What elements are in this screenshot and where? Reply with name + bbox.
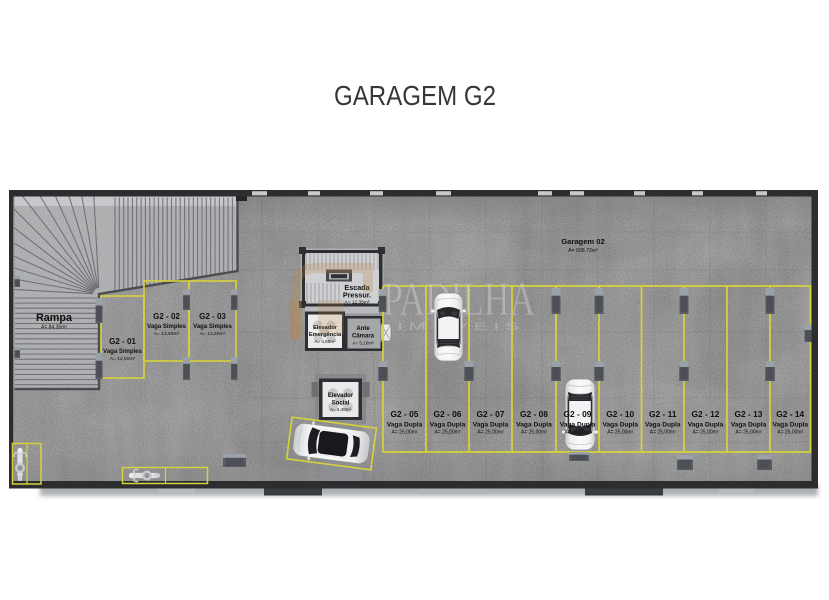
svg-text:G2 - 06: G2 - 06 — [434, 409, 462, 419]
svg-text:Vaga Dupla: Vaga Dupla — [731, 422, 767, 429]
svg-text:Social: Social — [332, 401, 350, 407]
svg-text:A= 12,35m²: A= 12,35m² — [345, 300, 370, 306]
svg-text:A= 12,50m²: A= 12,50m² — [200, 331, 226, 337]
svg-text:Vaga Simples: Vaga Simples — [147, 324, 186, 330]
svg-text:Vaga Dupla: Vaga Dupla — [602, 422, 638, 429]
svg-text:G2 - 10: G2 - 10 — [606, 409, 634, 419]
svg-text:A= 12,50m²: A= 12,50m² — [110, 356, 136, 362]
svg-text:A= 25,00m²: A= 25,00m² — [392, 430, 418, 436]
svg-text:A= 12,50m²: A= 12,50m² — [154, 331, 180, 337]
svg-text:Vaga Dupla: Vaga Dupla — [645, 422, 681, 429]
svg-text:G2 - 07: G2 - 07 — [477, 409, 505, 419]
svg-text:Vaga Dupla: Vaga Dupla — [688, 422, 724, 429]
svg-text:G2 - 08: G2 - 08 — [520, 409, 548, 419]
svg-text:A= 25,00m²: A= 25,00m² — [521, 430, 547, 436]
svg-text:Câmara: Câmara — [352, 334, 375, 340]
svg-text:A= 25,00m²: A= 25,00m² — [777, 430, 803, 436]
svg-text:G2 - 03: G2 - 03 — [199, 312, 226, 321]
svg-text:Ante: Ante — [356, 326, 370, 332]
svg-text:Rampa: Rampa — [36, 312, 73, 324]
svg-text:A= 84,35m²: A= 84,35m² — [41, 325, 67, 331]
svg-text:Vaga Dupla: Vaga Dupla — [560, 422, 596, 429]
svg-text:A= 25,00m²: A= 25,00m² — [435, 430, 461, 436]
svg-text:A= 4,40m²: A= 4,40m² — [330, 407, 352, 412]
svg-text:A= 25,00m²: A= 25,00m² — [650, 430, 676, 436]
svg-text:Vaga Dupla: Vaga Dupla — [516, 422, 552, 429]
svg-text:A= 25,00m²: A= 25,00m² — [478, 430, 504, 436]
svg-text:A= 25,00m²: A= 25,00m² — [607, 430, 633, 436]
svg-text:Vaga Simples: Vaga Simples — [193, 324, 232, 330]
svg-text:Vaga Dupla: Vaga Dupla — [473, 422, 509, 429]
svg-text:Elevador: Elevador — [328, 393, 354, 399]
svg-text:Vaga Dupla: Vaga Dupla — [430, 422, 466, 429]
svg-text:G2 - 13: G2 - 13 — [735, 409, 763, 419]
svg-text:A= 5,10m²: A= 5,10m² — [352, 341, 374, 346]
svg-text:G2 - 02: G2 - 02 — [153, 312, 180, 321]
svg-text:A= 25,00m²: A= 25,00m² — [693, 430, 719, 436]
svg-text:A= 698.72m²: A= 698.72m² — [568, 248, 598, 254]
svg-text:Vaga Dupla: Vaga Dupla — [772, 422, 808, 429]
svg-text:A= 25,00m²: A= 25,00m² — [565, 430, 591, 436]
svg-text:Garagem 02: Garagem 02 — [561, 237, 604, 246]
svg-text:Vaga Simples: Vaga Simples — [103, 349, 142, 355]
svg-text:A= 25,00m²: A= 25,00m² — [736, 430, 762, 436]
svg-text:G2 - 11: G2 - 11 — [649, 409, 677, 419]
svg-text:G2 - 05: G2 - 05 — [391, 409, 419, 419]
svg-text:GARAGEM G2: GARAGEM G2 — [334, 80, 496, 111]
svg-text:A= 4,60m²: A= 4,60m² — [314, 339, 336, 344]
svg-text:Vaga Dupla: Vaga Dupla — [387, 422, 423, 429]
svg-text:G2 - 12: G2 - 12 — [692, 409, 720, 419]
svg-text:G2 - 01: G2 - 01 — [109, 337, 136, 346]
svg-text:G2 - 14: G2 - 14 — [776, 409, 804, 419]
svg-text:G2 - 09: G2 - 09 — [564, 409, 592, 419]
